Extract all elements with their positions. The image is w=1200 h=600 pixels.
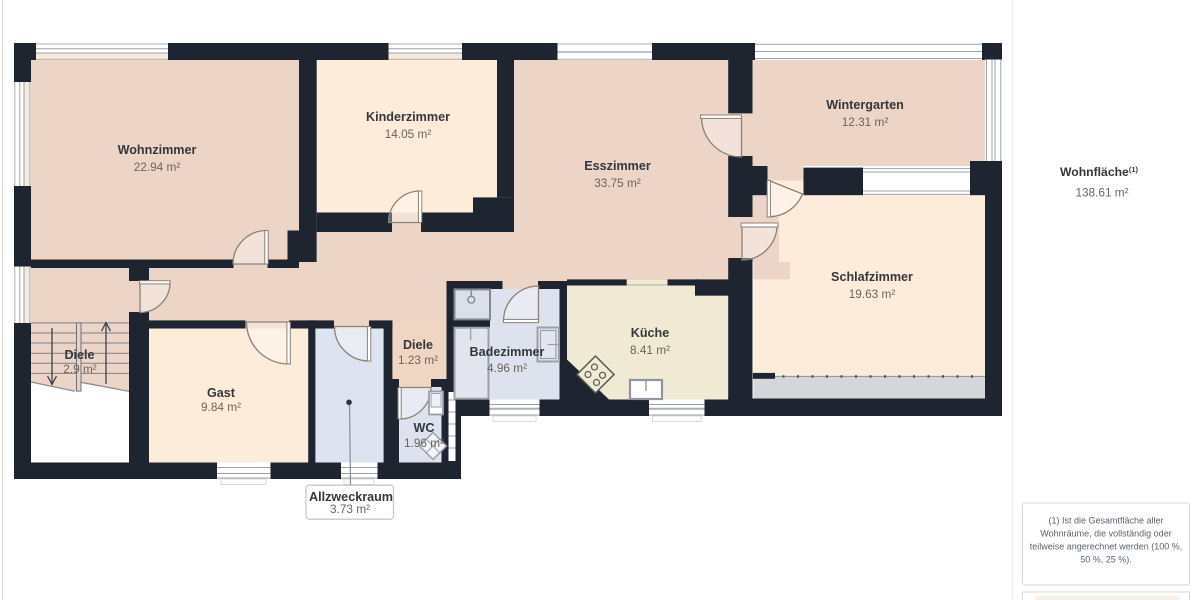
svg-text:2.9 m²: 2.9 m² bbox=[63, 362, 97, 376]
svg-text:Wohnräume, die vollständig ode: Wohnräume, die vollständig oder bbox=[1040, 529, 1171, 539]
svg-text:Badezimmer: Badezimmer bbox=[470, 345, 545, 359]
svg-text:Wohnfläche(1): Wohnfläche(1) bbox=[1060, 165, 1139, 179]
svg-text:Schlafzimmer: Schlafzimmer bbox=[831, 270, 913, 284]
svg-text:3.73 m²: 3.73 m² bbox=[330, 502, 370, 516]
svg-text:1.96 m²: 1.96 m² bbox=[404, 436, 444, 450]
svg-text:19.63 m²: 19.63 m² bbox=[849, 287, 896, 301]
svg-text:(1) Ist die Gesamtfläche aller: (1) Ist die Gesamtfläche aller bbox=[1048, 516, 1163, 526]
svg-text:22.94 m²: 22.94 m² bbox=[134, 160, 181, 174]
svg-text:14.05 m²: 14.05 m² bbox=[385, 127, 432, 141]
svg-text:138.61 m²: 138.61 m² bbox=[1075, 186, 1128, 200]
svg-text:33.75 m²: 33.75 m² bbox=[594, 176, 641, 190]
svg-text:Wintergarten: Wintergarten bbox=[826, 98, 904, 112]
svg-text:50 %, 25 %).: 50 %, 25 %). bbox=[1080, 555, 1132, 565]
svg-text:9.84 m²: 9.84 m² bbox=[201, 400, 241, 414]
svg-text:Esszimmer: Esszimmer bbox=[584, 159, 651, 173]
svg-text:Kinderzimmer: Kinderzimmer bbox=[366, 110, 450, 124]
svg-text:4.96 m²: 4.96 m² bbox=[487, 361, 527, 375]
svg-text:12.31 m²: 12.31 m² bbox=[842, 115, 889, 129]
svg-text:WC: WC bbox=[414, 421, 435, 435]
svg-text:Diele: Diele bbox=[403, 338, 433, 352]
svg-text:Diele: Diele bbox=[64, 348, 94, 362]
svg-text:Küche: Küche bbox=[631, 326, 670, 340]
svg-text:8.41 m²: 8.41 m² bbox=[630, 343, 670, 357]
svg-text:teilweise angerechnet werden (: teilweise angerechnet werden (100 %, bbox=[1030, 542, 1183, 552]
svg-text:Gast: Gast bbox=[207, 386, 236, 400]
svg-text:Wohnzimmer: Wohnzimmer bbox=[118, 143, 197, 157]
svg-text:1.23 m²: 1.23 m² bbox=[398, 353, 438, 367]
